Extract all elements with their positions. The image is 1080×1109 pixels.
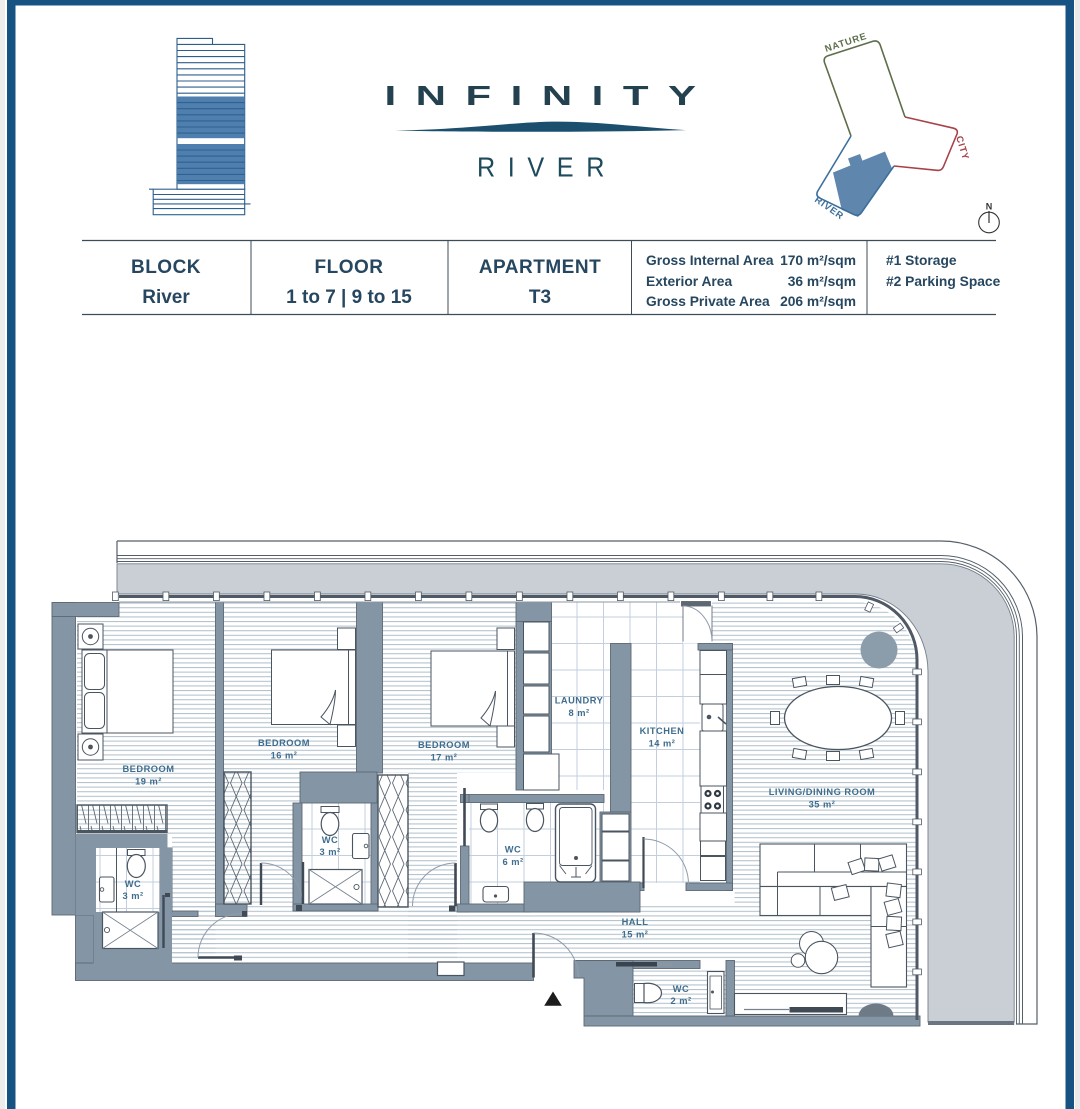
svg-text:APARTMENT: APARTMENT — [479, 257, 601, 278]
svg-text:2 m²: 2 m² — [670, 996, 691, 1006]
svg-text:RIVER: RIVER — [477, 152, 617, 183]
svg-text:16 m²: 16 m² — [271, 751, 298, 761]
svg-text:17 m²: 17 m² — [431, 753, 458, 763]
svg-text:T3: T3 — [529, 287, 551, 308]
svg-text:Gross Internal Area: Gross Internal Area — [646, 253, 774, 268]
svg-text:35 m²: 35 m² — [809, 800, 836, 810]
svg-text:WC: WC — [673, 984, 690, 994]
svg-text:INFINITY: INFINITY — [385, 80, 716, 111]
svg-text:WC: WC — [125, 879, 142, 889]
svg-text:3 m²: 3 m² — [122, 891, 143, 901]
svg-text:BLOCK: BLOCK — [131, 257, 201, 278]
svg-text:WC: WC — [322, 835, 339, 845]
svg-text:6 m²: 6 m² — [502, 857, 523, 867]
svg-text:BEDROOM: BEDROOM — [258, 738, 310, 748]
svg-text:WC: WC — [505, 845, 522, 855]
svg-text:19 m²: 19 m² — [135, 777, 162, 787]
svg-text:206 m²/sqm: 206 m²/sqm — [780, 294, 856, 309]
svg-text:River: River — [142, 287, 190, 308]
svg-text:Exterior Area: Exterior Area — [646, 274, 732, 289]
svg-text:15 m²: 15 m² — [622, 930, 649, 940]
svg-text:LAUNDRY: LAUNDRY — [555, 696, 604, 706]
svg-text:170 m²/sqm: 170 m²/sqm — [780, 253, 856, 268]
svg-text:14 m²: 14 m² — [649, 739, 676, 749]
svg-text:LIVING/DINING ROOM: LIVING/DINING ROOM — [769, 787, 876, 797]
svg-text:FLOOR: FLOOR — [315, 257, 384, 278]
svg-text:1 to 7 | 9 to 15: 1 to 7 | 9 to 15 — [286, 287, 412, 308]
svg-text:3 m²: 3 m² — [319, 847, 340, 857]
svg-text:#1 Storage: #1 Storage — [886, 253, 957, 268]
svg-text:8 m²: 8 m² — [568, 708, 589, 718]
svg-text:HALL: HALL — [622, 917, 649, 927]
svg-text:BEDROOM: BEDROOM — [122, 764, 174, 774]
svg-text:#2 Parking Space: #2 Parking Space — [886, 274, 1001, 289]
svg-text:36 m²/sqm: 36 m²/sqm — [788, 274, 856, 289]
svg-text:N: N — [986, 202, 993, 212]
svg-text:BEDROOM: BEDROOM — [418, 740, 470, 750]
svg-text:Gross Private Area: Gross Private Area — [646, 294, 770, 309]
svg-text:KITCHEN: KITCHEN — [640, 726, 685, 736]
